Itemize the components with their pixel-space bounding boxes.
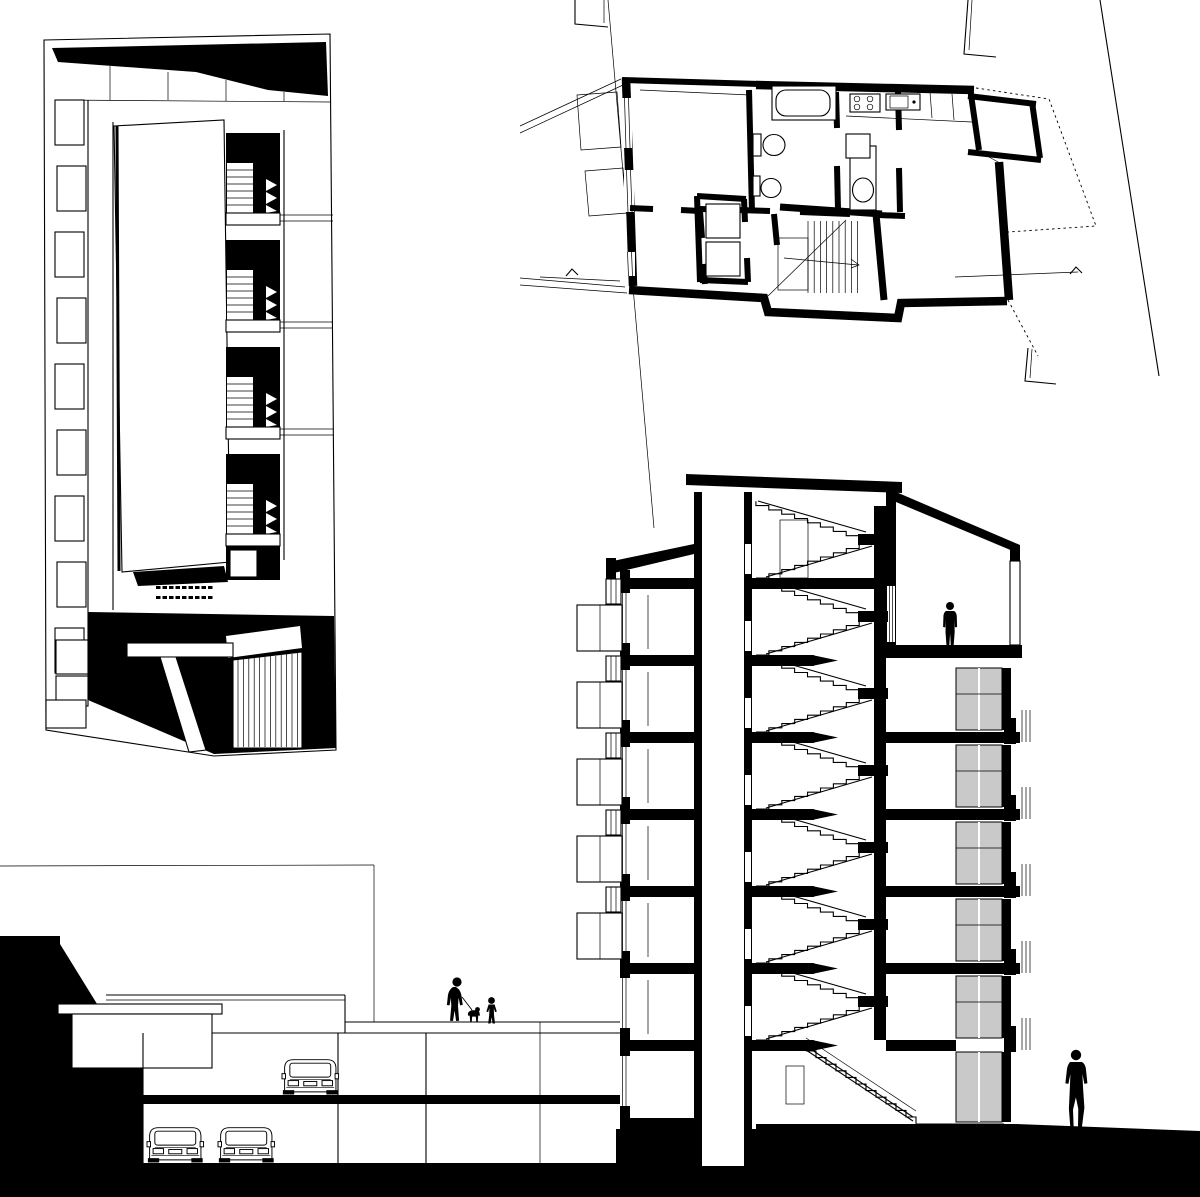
plan-toilet xyxy=(753,134,785,156)
axonometric-view xyxy=(44,34,336,756)
drawing-sheet xyxy=(0,0,1200,1197)
car xyxy=(147,1128,204,1163)
axo-canopy xyxy=(127,643,233,657)
cooktop xyxy=(850,94,880,112)
axo-dashed-marks xyxy=(156,586,213,589)
garage-base xyxy=(143,1163,630,1197)
elevator-shaft xyxy=(694,492,752,1168)
stair-core-wall xyxy=(874,506,886,1040)
kitchen-island xyxy=(846,134,870,158)
axo-courtyard xyxy=(114,120,230,572)
kiosk xyxy=(58,1004,222,1068)
car xyxy=(218,1128,275,1163)
axo-balcony-stack xyxy=(55,100,86,673)
plan-bathtub xyxy=(772,86,836,120)
architectural-drawing xyxy=(0,0,1200,1197)
terrace-parapet xyxy=(1010,561,1020,645)
car xyxy=(282,1060,339,1095)
